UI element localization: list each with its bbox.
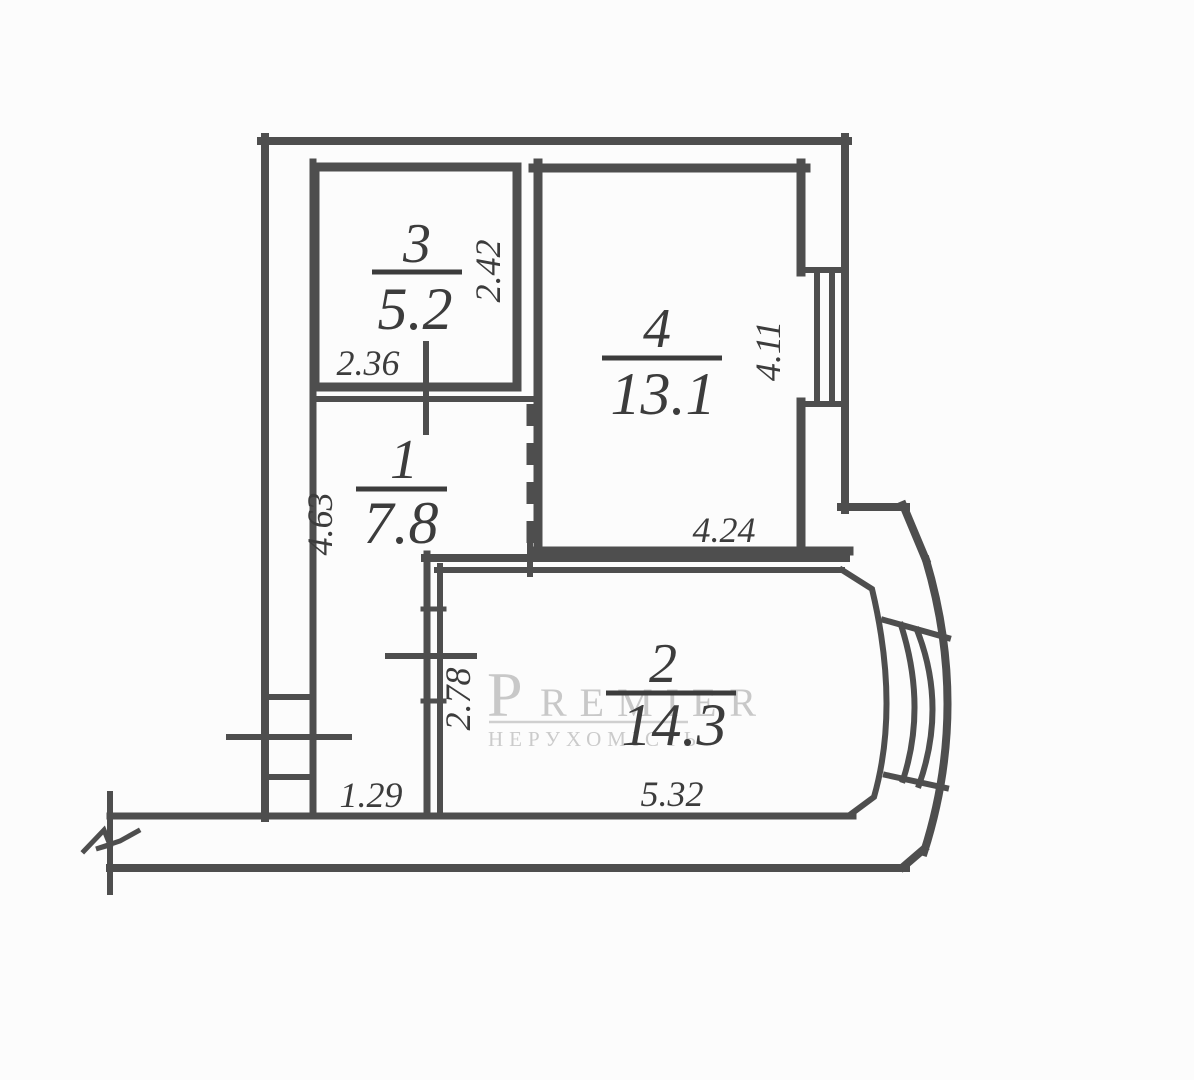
- room-4-area: 13.1: [611, 361, 716, 427]
- room-4-number: 4: [643, 298, 671, 360]
- room-2-area: 14.3: [622, 692, 727, 758]
- room-1-number: 1: [390, 429, 418, 491]
- dim-room4-width: 4.24: [693, 510, 756, 550]
- room-1-area: 7.8: [364, 490, 439, 556]
- left-inner-wall: [265, 162, 313, 816]
- watermark-brand-initial: P: [487, 659, 529, 730]
- room-2-bay-inner-wall: [842, 570, 887, 814]
- floor-plan-drawing: P REMIER НЕРУХОМІСТЬ: [0, 0, 1194, 1080]
- bay-outer-curve: [924, 560, 948, 852]
- room-3-number: 3: [402, 213, 431, 275]
- room-3-label: 3 5.2: [372, 213, 462, 342]
- room-2-label: 2 14.3: [606, 633, 736, 758]
- room-4-window: [801, 270, 845, 404]
- dim-room4-depth: 4.11: [748, 321, 788, 381]
- floor-plan-page: P REMIER НЕРУХОМІСТЬ: [0, 0, 1194, 1080]
- dim-room2-depth: 2.78: [438, 668, 478, 731]
- room-2-number: 2: [649, 633, 677, 695]
- bay-window: [884, 620, 948, 788]
- room-labels: 3 5.2 4 13.1 1 7.8 2 14.3: [356, 213, 736, 758]
- dim-hall-bottom: 1.29: [340, 775, 403, 815]
- bay-top-diagonal: [903, 505, 926, 560]
- room-4-label: 4 13.1: [602, 298, 722, 427]
- bay-window-pane-line-2: [917, 630, 933, 785]
- dim-room1-depth: 4.63: [300, 493, 340, 556]
- dim-room2-width: 5.32: [641, 774, 704, 814]
- dim-room3-depth: 2.42: [468, 240, 508, 303]
- bay-window-pane-line-1: [901, 625, 915, 780]
- room-1-label: 1 7.8: [356, 429, 447, 556]
- room-3-area: 5.2: [378, 276, 453, 342]
- dim-room3-width: 2.36: [337, 343, 400, 383]
